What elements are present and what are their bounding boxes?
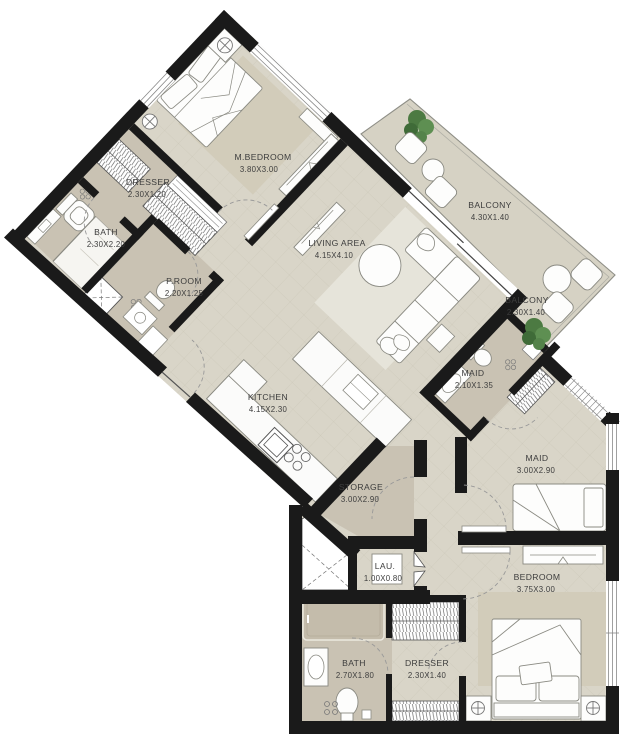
svg-text:M.BEDROOM: M.BEDROOM [234, 152, 291, 162]
svg-text:BALCONY: BALCONY [468, 200, 512, 210]
svg-text:4.15X2.30: 4.15X2.30 [249, 405, 288, 414]
svg-text:2.30X1.20: 2.30X1.20 [128, 190, 167, 199]
svg-text:2.10X1.35: 2.10X1.35 [455, 381, 494, 390]
svg-text:MAID: MAID [462, 368, 485, 378]
svg-text:1.00X0.80: 1.00X0.80 [364, 574, 403, 583]
svg-text:LIVING AREA: LIVING AREA [308, 238, 365, 248]
svg-text:2.30X1.40: 2.30X1.40 [408, 671, 447, 680]
svg-text:P.ROOM: P.ROOM [166, 276, 202, 286]
svg-text:KITCHEN: KITCHEN [248, 392, 288, 402]
svg-text:2.20X1.25: 2.20X1.25 [165, 289, 204, 298]
svg-text:3.80X3.00: 3.80X3.00 [240, 165, 279, 174]
svg-text:4.15X4.10: 4.15X4.10 [315, 251, 354, 260]
svg-text:2.30X2.20: 2.30X2.20 [87, 240, 126, 249]
svg-text:BATH: BATH [342, 658, 366, 668]
svg-text:LAU.: LAU. [375, 561, 396, 571]
svg-text:2.30X1.40: 2.30X1.40 [507, 308, 546, 317]
svg-text:3.00X2.90: 3.00X2.90 [341, 495, 380, 504]
svg-text:4.30X1.40: 4.30X1.40 [471, 213, 510, 222]
svg-text:3.75X3.00: 3.75X3.00 [517, 585, 556, 594]
svg-text:BEDROOM: BEDROOM [514, 572, 561, 582]
svg-text:STORAGE: STORAGE [339, 482, 383, 492]
svg-text:BATH: BATH [94, 227, 118, 237]
svg-text:3.00X2.90: 3.00X2.90 [517, 466, 556, 475]
svg-text:2.70X1.80: 2.70X1.80 [336, 671, 375, 680]
svg-text:MAID: MAID [526, 453, 549, 463]
svg-text:DRESSER: DRESSER [405, 658, 449, 668]
svg-text:DRESSER: DRESSER [126, 177, 170, 187]
svg-text:BALCONY: BALCONY [505, 295, 549, 305]
